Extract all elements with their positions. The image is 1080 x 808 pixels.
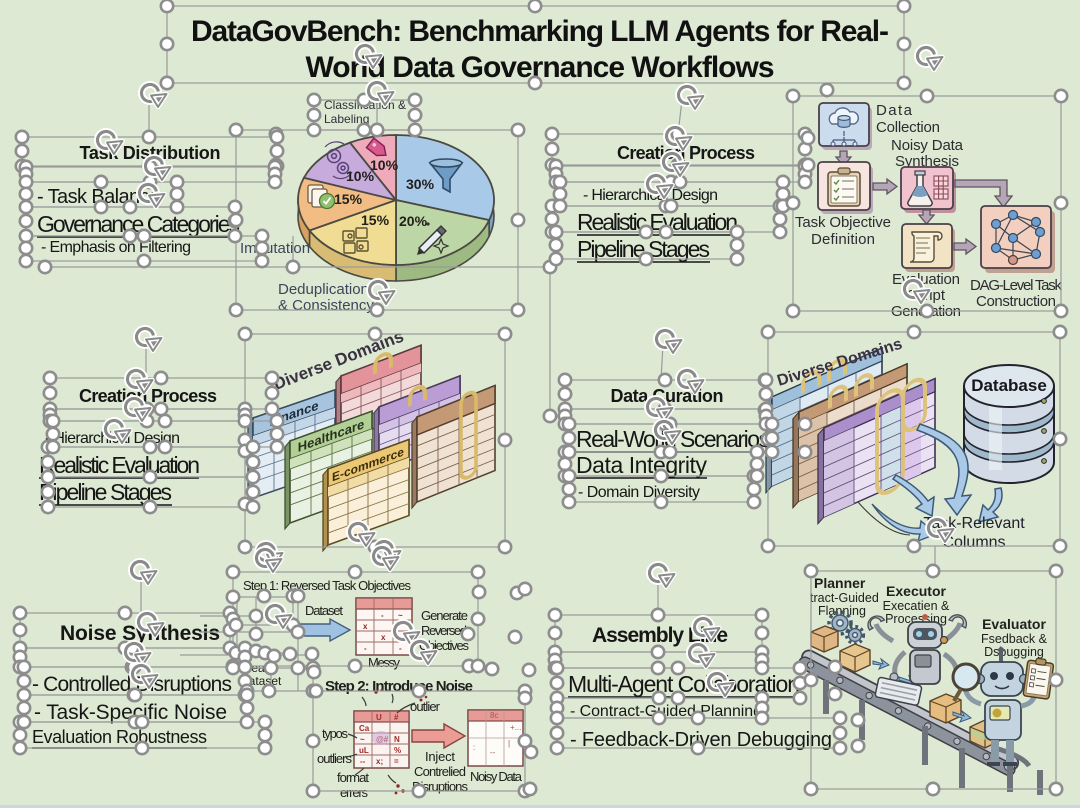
- svg-text:Evaluator: Evaluator: [982, 616, 1046, 632]
- svg-text:=: =: [394, 757, 399, 766]
- svg-text:Deduplication: Deduplication: [278, 281, 369, 298]
- svg-text:20%: 20%: [399, 213, 428, 229]
- svg-text:30%: 30%: [406, 176, 435, 192]
- svg-text:uL: uL: [359, 746, 369, 755]
- svg-text:Evaluation Robustness: Evaluation Robustness: [32, 727, 207, 747]
- svg-text:errers: errers: [340, 785, 369, 800]
- svg-text:x;: x;: [376, 757, 383, 766]
- svg-text:Construction: Construction: [976, 293, 1056, 310]
- svg-text:Execatien &: Execatien &: [883, 599, 950, 613]
- svg-text:Step 2: Introduce Noise: Step 2: Introduce Noise: [325, 678, 473, 695]
- svg-text:Noisy Data: Noisy Data: [891, 137, 964, 154]
- svg-text:Planner: Planner: [814, 575, 866, 591]
- svg-text:#: #: [394, 713, 399, 722]
- svg-text:Task Objective: Task Objective: [795, 214, 891, 231]
- svg-text:Dataset: Dataset: [305, 603, 343, 618]
- svg-text:10%: 10%: [346, 168, 375, 184]
- svg-text:+...: +...: [510, 723, 521, 732]
- svg-text:--: --: [360, 757, 366, 766]
- svg-text:-: -: [399, 644, 402, 653]
- svg-text:& Consistency: & Consistency: [278, 297, 374, 314]
- svg-text:- Domain Diversity: - Domain Diversity: [578, 484, 700, 501]
- svg-text:10%: 10%: [370, 157, 399, 173]
- svg-text:Dsbugging: Dsbugging: [984, 645, 1044, 659]
- svg-text:Generate: Generate: [421, 608, 468, 623]
- svg-text:x: x: [381, 633, 386, 642]
- svg-text:15%: 15%: [334, 191, 363, 207]
- svg-text:DataGovBench: Benchmarking LLM: DataGovBench: Benchmarking LLM Agents fo…: [191, 15, 889, 48]
- svg-text:Noisy Data: Noisy Data: [470, 769, 523, 784]
- svg-text:tract-Guided: tract-Guided: [810, 591, 879, 605]
- svg-text:outlier: outlier: [410, 699, 441, 714]
- svg-text:Reversed: Reversed: [421, 623, 467, 638]
- svg-text:U: U: [376, 713, 382, 722]
- svg-text:N: N: [394, 735, 400, 744]
- svg-text:%: %: [394, 746, 401, 755]
- svg-text:|: |: [508, 739, 510, 748]
- svg-text:Imputation: Imputation: [240, 240, 310, 257]
- svg-text:-: -: [381, 611, 384, 620]
- svg-text:Definition: Definition: [811, 231, 875, 248]
- svg-text:Data Integrity: Data Integrity: [576, 452, 708, 478]
- svg-text:Fsedback &: Fsedback &: [981, 632, 1048, 646]
- svg-text:Inject: Inject: [425, 749, 455, 764]
- svg-text:Realistic Evaluation: Realistic Evaluation: [577, 209, 738, 235]
- svg-text:Contrelied: Contrelied: [414, 764, 466, 779]
- svg-text:format: format: [337, 770, 369, 785]
- svg-text:Database: Database: [971, 376, 1047, 395]
- svg-text:Realistic Evaluation: Realistic Evaluation: [39, 452, 200, 478]
- svg-text:x: x: [363, 622, 368, 631]
- svg-text:-: -: [364, 644, 367, 653]
- svg-text:- Emphasis on Filtering: - Emphasis on Filtering: [41, 239, 191, 256]
- svg-text:typos: typos: [322, 726, 349, 741]
- svg-text::: :: [473, 743, 475, 752]
- svg-text:Messy: Messy: [368, 655, 401, 670]
- svg-text:Executor: Executor: [886, 583, 946, 599]
- svg-text:~: ~: [360, 735, 365, 744]
- svg-text:Collection: Collection: [876, 119, 940, 136]
- svg-text:--: --: [490, 748, 496, 757]
- svg-text:15%: 15%: [361, 212, 390, 228]
- svg-text:Ca: Ca: [359, 724, 370, 733]
- svg-text:DAG-Level Task: DAG-Level Task: [970, 277, 1063, 294]
- svg-text:Columns: Columns: [942, 534, 1005, 551]
- svg-text:Data: Data: [876, 102, 913, 119]
- svg-text:8c: 8c: [490, 711, 498, 720]
- svg-text:~: ~: [398, 611, 403, 620]
- svg-text:outliers: outliers: [317, 751, 353, 766]
